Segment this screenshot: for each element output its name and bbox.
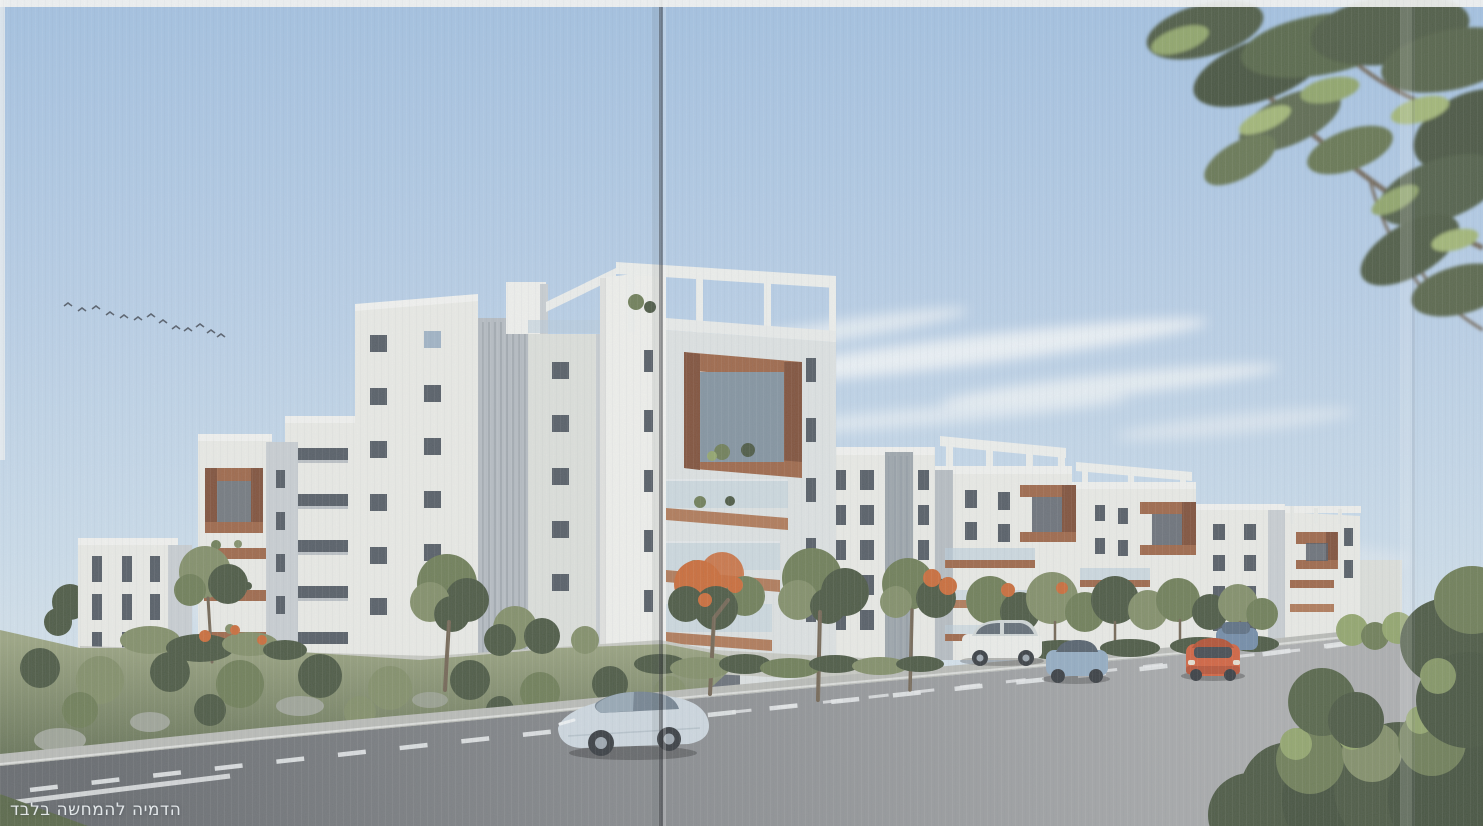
architectural-rendering-scan: הדמיה להמחשה בלבד — [0, 0, 1483, 826]
haze-overlay — [0, 0, 1483, 826]
watermark-text: הדמיה להמחשה בלבד — [10, 800, 181, 820]
